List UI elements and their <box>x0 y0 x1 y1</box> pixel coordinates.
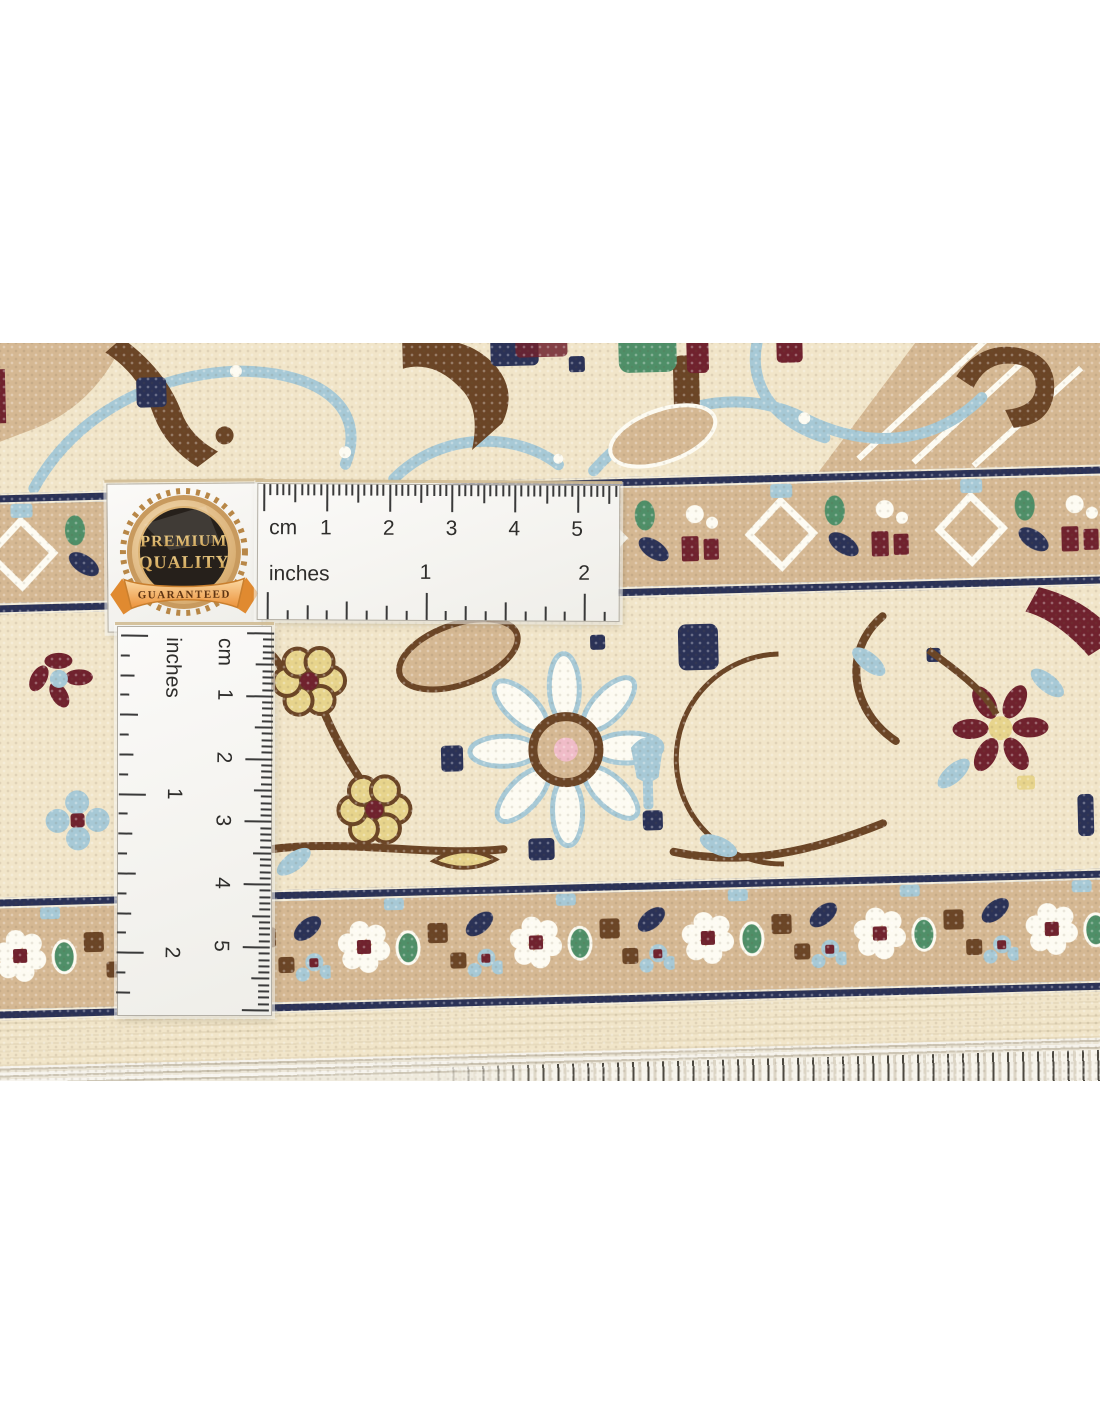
cm-number: 4 <box>508 518 520 542</box>
badge-ribbon-text: GUARANTEED <box>138 589 231 602</box>
cm-number: 1 <box>320 517 332 541</box>
cm-number: 1 <box>212 689 236 701</box>
ruler-face: cm 12345 inches 12 <box>116 625 274 1015</box>
cm-numbers: 12345 <box>208 627 237 1015</box>
cm-number: 5 <box>571 518 583 542</box>
inch-number: 2 <box>160 946 184 958</box>
premium-quality-badge: PREMIUM QUALITY GUARANTEED <box>106 482 262 632</box>
inch-numbers: 12 <box>258 560 619 586</box>
inch-tick-strip <box>258 589 619 621</box>
fringe-tassels <box>422 1049 1100 1081</box>
cm-number: 3 <box>211 814 235 826</box>
cm-number: 2 <box>383 517 395 541</box>
cm-number: 2 <box>212 751 236 763</box>
badge-title-line1: PREMIUM <box>140 533 227 551</box>
ruler-face: cm 12345 inches 12 <box>258 484 620 621</box>
vertical-ruler: cm 12345 inches 12 <box>117 626 272 1016</box>
cm-number: 5 <box>209 940 233 952</box>
badge-title-line2: QUALITY <box>138 552 229 573</box>
inch-number: 1 <box>420 560 432 584</box>
inch-number: 1 <box>162 788 186 800</box>
horizontal-ruler: cm 12345 inches 12 <box>257 483 621 622</box>
badge-seal: PREMIUM QUALITY GUARANTEED <box>107 483 261 631</box>
product-photo-page: PREMIUM QUALITY GUARANTEED cm 12345 inch… <box>0 0 1100 1422</box>
cm-numbers: 12345 <box>258 516 619 542</box>
cm-tick-strip <box>239 627 274 1015</box>
inch-tick-strip <box>116 625 151 1013</box>
inch-number: 2 <box>578 561 590 585</box>
inch-numbers: 12 <box>159 626 188 1014</box>
cm-number: 4 <box>210 877 234 889</box>
cm-tick-strip <box>258 484 619 516</box>
cm-number: 3 <box>446 517 458 541</box>
